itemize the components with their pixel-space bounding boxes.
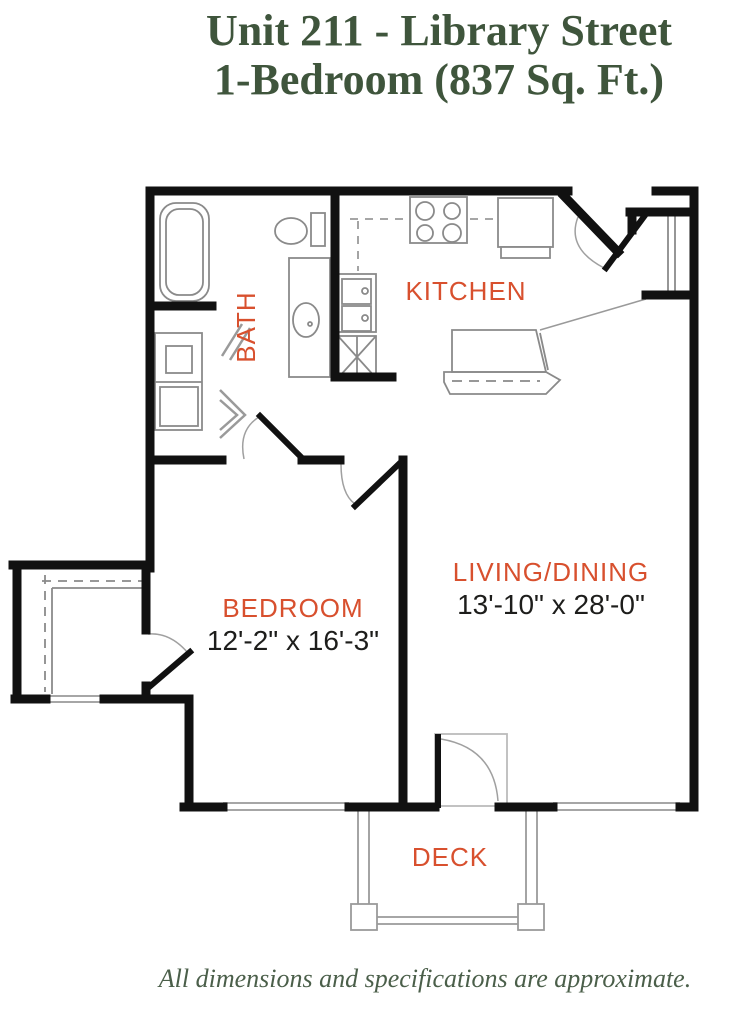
deck-door-frame [435,734,507,806]
bedroom-door-arc [341,464,355,504]
closet-window [46,696,104,702]
refrigerator [498,198,553,258]
vanity-sink [289,258,330,377]
room-dimensions-bedroom: 12'-2" x 16'-3" [207,625,379,656]
toilet [275,213,325,246]
bath-door-leaf [260,416,302,458]
washer-dryer [155,333,202,430]
disclaimer-text: All dimensions and specifications are ap… [104,964,746,994]
entry-closet-doors [668,216,675,292]
deck-door-arc [441,739,498,801]
bedroom-door-leaf [355,462,401,506]
door-leaves [148,214,646,805]
room-label-kitchen: KITCHEN [405,276,526,306]
bedroom-window [223,803,349,810]
closet-door-leaf [148,652,190,688]
room-labels: BATH KITCHEN BEDROOM 12'-2" x 16'-3" LIV… [207,276,649,872]
kitchen-sink [338,274,376,332]
closet-door-arc [148,634,188,653]
windows [46,696,680,810]
room-label-deck: DECK [412,842,488,872]
bath-door-arc [243,417,259,459]
bathtub [160,203,209,301]
bar-counter [444,330,560,394]
entry-floor-line [540,299,646,330]
room-label-bedroom: BEDROOM [222,593,363,623]
stove [410,197,467,243]
room-label-living-dining: LIVING/DINING [453,557,649,587]
floor-plan: BATH KITCHEN BEDROOM 12'-2" x 16'-3" LIV… [0,0,746,1024]
living-window [553,803,680,810]
dishwasher [338,336,376,378]
wall-entry-angled [564,196,618,252]
room-label-bath: BATH [231,291,261,362]
room-dimensions-living-dining: 13'-10" x 28'-0" [457,589,645,620]
bedroom-closet-shelving [42,575,142,694]
